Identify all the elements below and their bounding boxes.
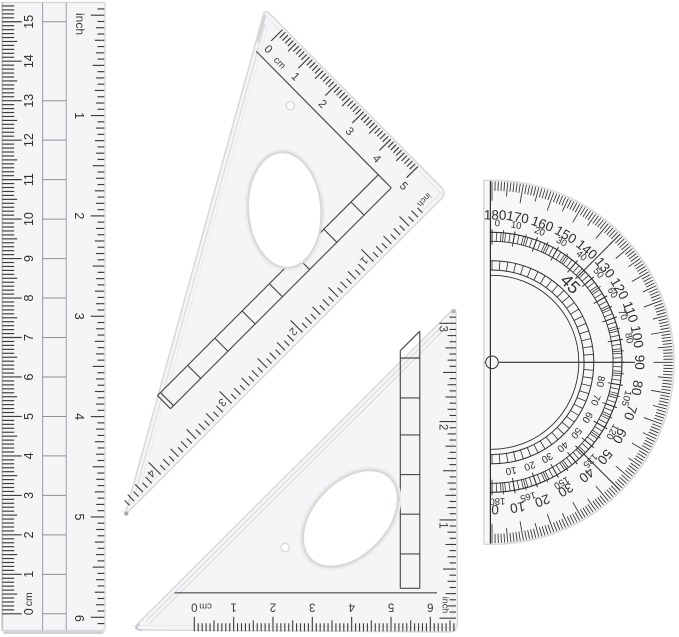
svg-text:5: 5 xyxy=(22,413,36,420)
svg-text:4: 4 xyxy=(72,413,86,420)
svg-text:5: 5 xyxy=(72,513,86,520)
svg-text:5: 5 xyxy=(388,600,394,612)
svg-text:0: 0 xyxy=(191,600,197,612)
svg-text:inch: inch xyxy=(440,597,450,614)
svg-text:6: 6 xyxy=(72,615,86,622)
svg-text:15: 15 xyxy=(22,15,36,29)
svg-text:11: 11 xyxy=(22,173,36,186)
svg-text:1: 1 xyxy=(22,571,36,578)
svg-text:2: 2 xyxy=(270,600,276,612)
svg-text:1: 1 xyxy=(72,112,86,119)
svg-text:1: 1 xyxy=(230,600,236,612)
svg-text:3: 3 xyxy=(309,600,315,612)
svg-text:13: 13 xyxy=(22,94,36,108)
svg-text:3: 3 xyxy=(22,492,36,499)
svg-text:2: 2 xyxy=(72,212,86,219)
svg-text:9: 9 xyxy=(22,255,36,262)
svg-text:10: 10 xyxy=(22,212,36,226)
svg-text:cm: cm xyxy=(199,600,212,611)
svg-text:1: 1 xyxy=(436,522,448,528)
svg-text:6: 6 xyxy=(22,373,36,380)
svg-text:80: 80 xyxy=(622,332,635,344)
svg-text:0: 0 xyxy=(22,608,36,615)
svg-text:7: 7 xyxy=(22,334,36,341)
svg-text:14: 14 xyxy=(22,54,36,68)
svg-text:inch: inch xyxy=(73,13,87,35)
svg-text:4: 4 xyxy=(348,600,355,612)
svg-text:cm: cm xyxy=(23,592,35,606)
svg-text:0: 0 xyxy=(494,218,500,229)
svg-text:10: 10 xyxy=(510,219,522,232)
svg-text:4: 4 xyxy=(22,452,36,459)
svg-text:6: 6 xyxy=(427,600,433,612)
svg-text:180: 180 xyxy=(489,495,505,507)
svg-text:3: 3 xyxy=(72,313,86,320)
svg-text:3: 3 xyxy=(436,326,448,332)
svg-text:2: 2 xyxy=(22,531,36,538)
svg-text:8: 8 xyxy=(22,295,36,302)
svg-text:12: 12 xyxy=(22,133,36,147)
svg-text:2: 2 xyxy=(436,424,448,430)
